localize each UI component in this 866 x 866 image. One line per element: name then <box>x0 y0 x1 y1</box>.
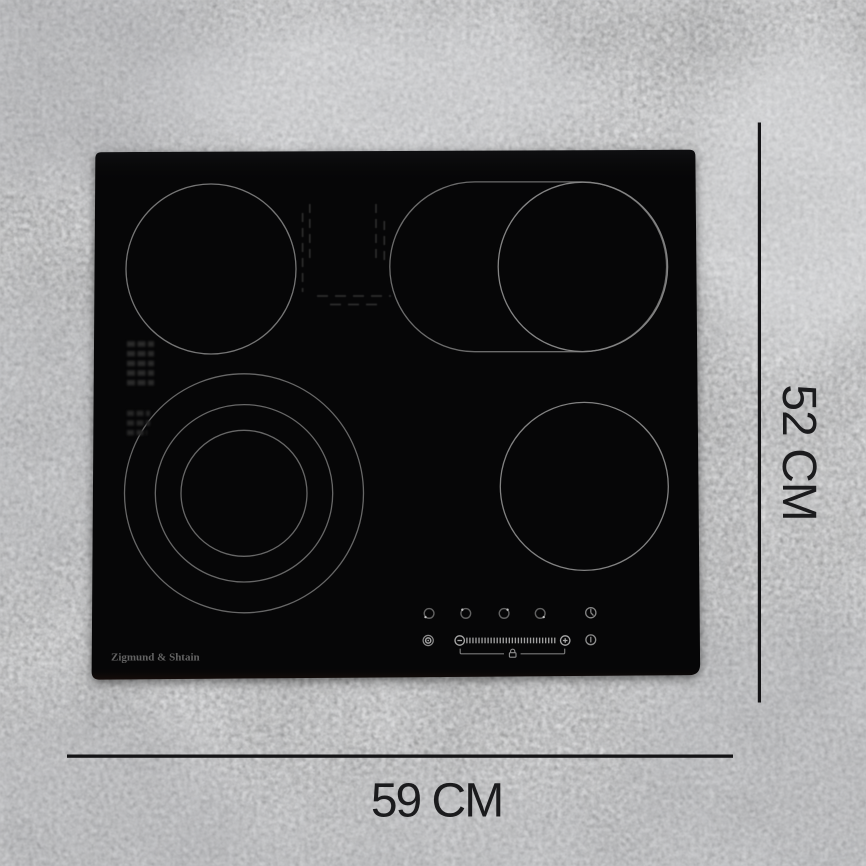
svg-text:59 CM: 59 CM <box>371 775 502 828</box>
svg-text:52 CM: 52 CM <box>772 384 825 520</box>
svg-text:Zigmund & Shtain: Zigmund & Shtain <box>111 652 200 664</box>
